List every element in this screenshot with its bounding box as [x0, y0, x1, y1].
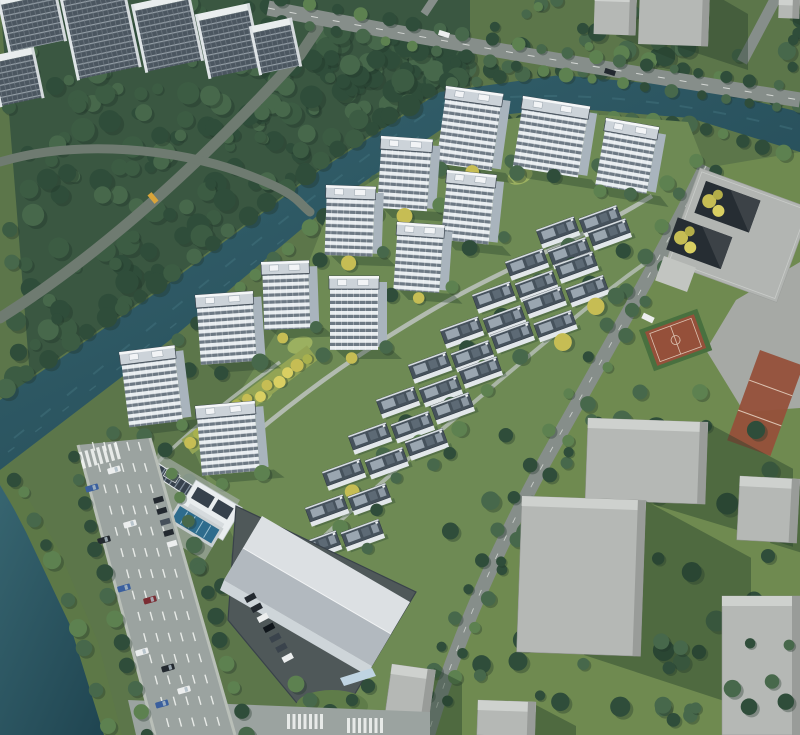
aerial-render: Bird's-eye architectural rendering of a …	[0, 0, 800, 735]
rendering-canvas	[0, 0, 800, 735]
context-block	[517, 496, 646, 656]
context-block	[778, 0, 800, 19]
context-block	[594, 0, 637, 35]
context-block	[585, 418, 708, 504]
context-block	[638, 0, 710, 46]
context-block	[737, 476, 800, 543]
context-block	[722, 596, 800, 735]
context-block	[477, 700, 536, 735]
